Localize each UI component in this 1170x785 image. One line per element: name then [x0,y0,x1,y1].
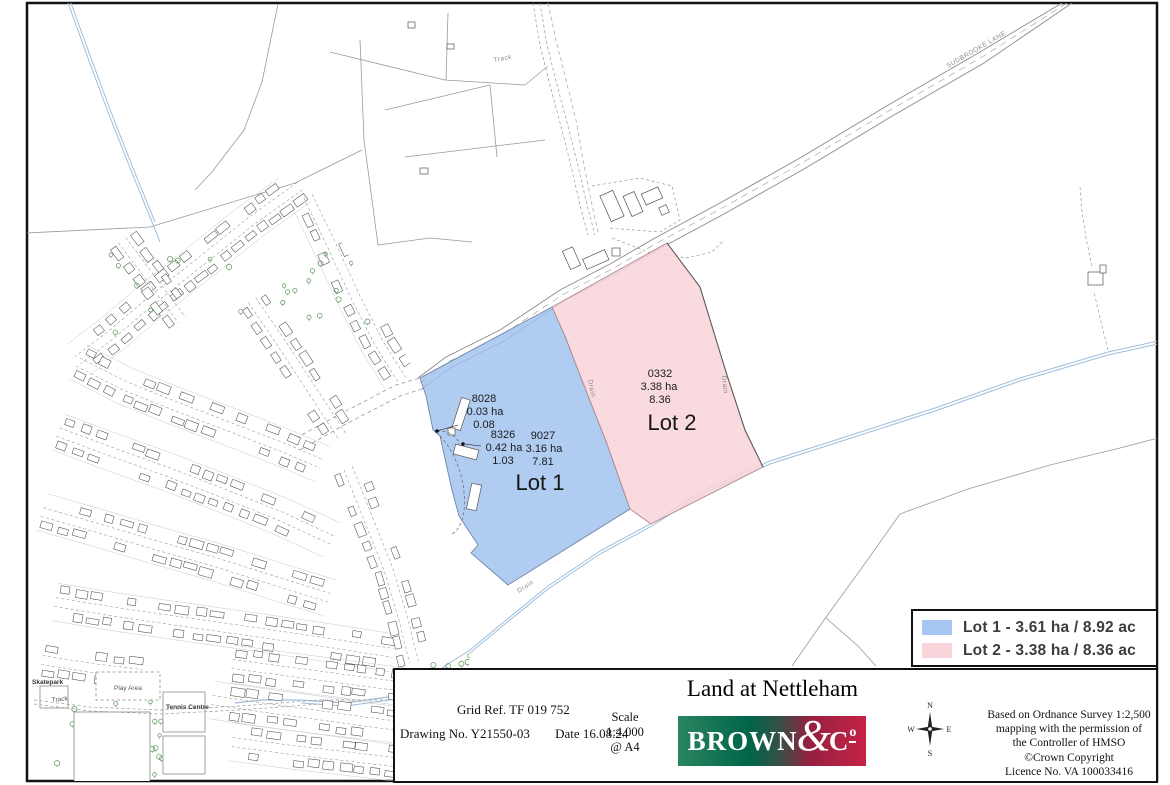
parcel-0332-ac: 8.36 [649,394,670,406]
logo-co-superscript: o [849,725,856,742]
attribution-line: mapping with the permission of [944,722,1170,736]
tennis-centre-label: Tennis Centre [166,704,209,711]
attribution-line: Licence No. VA 100033416 [944,765,1170,779]
parcel-9027-number: 9027 [531,430,555,442]
logo-ampersand: & [797,714,831,758]
attribution-line: Based on Ordnance Survey 1:2,500 [944,708,1170,722]
parcel-8326-ha: 0.42 ha [486,442,524,454]
scale-label: Scale [587,710,663,725]
parcel-8028-number: 8028 [472,393,496,405]
lot2-legend-label: Lot 2 - 3.38 ha / 8.36 ac [963,642,1136,660]
compass-w: W [908,725,915,734]
grid-ref: Grid Ref. TF 019 752 [457,702,570,718]
parcel-0332-ha: 3.38 ha [641,381,679,393]
legend-row-lot2: Lot 2 - 3.38 ha / 8.36 ac [922,639,1156,662]
parcel-8326-ac: 1.03 [492,455,513,467]
logo-co-text: C [829,726,849,757]
parcel-8028-ha: 0.03 ha [467,406,505,418]
scale-block: Scale 1:4,000 @ A4 [587,710,663,755]
title-block: Grid Ref. TF 019 752 Drawing No. Y21550-… [393,668,1158,783]
scale-value: 1:4,000 [587,725,663,740]
scale-sheet: @ A4 [587,740,663,755]
play-area-label: Play Area [114,685,142,692]
drawing-number: Drawing No. Y21550-03 [400,726,530,741]
lot-legend: Lot 1 - 3.61 ha / 8.92 ac Lot 2 - 3.38 h… [911,609,1158,667]
compass-s: S [928,749,932,758]
attribution-line: the Controller of HMSO [944,736,1170,750]
parcel-9027-ha: 3.16 ha [526,443,564,455]
skatepark-label: Skatepark [32,679,63,686]
parcel-0332-number: 0332 [648,368,672,380]
lot1-legend-label: Lot 1 - 3.61 ha / 8.92 ac [963,619,1136,637]
parcel-9027-ac: 7.81 [532,456,553,468]
brown-and-co-logo: BROWN & C o [678,716,866,766]
lot1-swatch [922,620,952,635]
parcel-8326-number: 8326 [491,429,515,441]
legend-row-lot1: Lot 1 - 3.61 ha / 8.92 ac [922,616,1156,639]
plan-title: Land at Nettleham [665,676,880,702]
site-plan-page: 8028 0.03 ha 0.08 8326 0.42 ha 1.03 9027… [0,0,1170,785]
lot2-swatch [922,643,952,658]
lot1-label: Lot 1 [516,470,565,495]
compass-n: N [927,701,933,710]
attribution-line: ©Crown Copyright [944,751,1170,765]
logo-brown-text: BROWN [688,726,798,757]
lot2-label: Lot 2 [648,410,697,435]
os-attribution: Based on Ordnance Survey 1:2,500 mapping… [944,708,1170,779]
